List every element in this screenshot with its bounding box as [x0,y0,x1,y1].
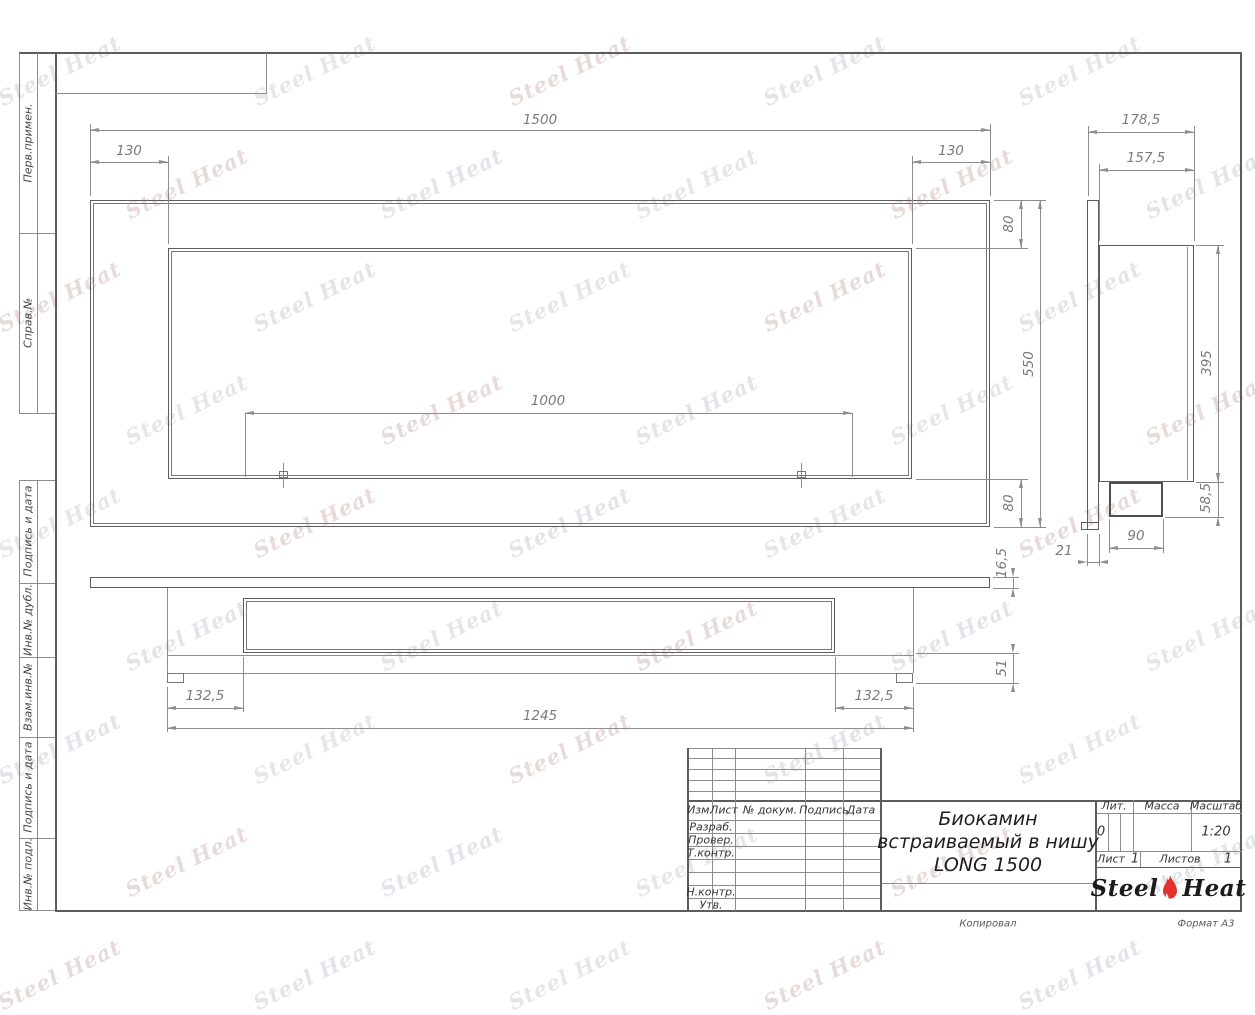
flame-icon [1160,875,1180,903]
sidebar-block-border [37,583,38,657]
stamp-line [687,791,880,792]
sidebar-label-podpis-data-2: Подпись и дата [22,741,35,832]
stamp-scale-value: 1:20 [1201,825,1230,840]
corner-box-right [266,53,267,94]
ext-line [1196,245,1224,246]
ext-line [912,156,913,244]
dim-front-burner-span [245,413,852,414]
ext-line [913,687,914,732]
stamp-col-line [1120,813,1121,851]
dim-side-niche-height [1218,245,1219,482]
dim-side-depth-inner [1099,170,1194,171]
side-view-flange-foot [1081,522,1099,530]
sidebar-block-border [37,657,38,737]
frame-top-border [19,52,1242,54]
ext-line [1163,519,1164,553]
drawing-title: Биокамин встраиваемый в нишу LONG 1500 [881,802,1095,882]
ext-line [916,479,1028,480]
stamp-col-line [843,748,844,911]
ext-line [1088,126,1089,196]
burner-clip-right [797,471,806,478]
ext-line [916,683,1019,684]
dim-front-width-total [90,130,990,131]
dim-label-bottom-offset-right: 132,5 [855,688,894,704]
stamp-sheets-label: Листов [1159,853,1200,866]
stamp-sheet-value: 1 [1131,852,1139,867]
sidebar-label-sprav-no: Справ.№ [22,298,35,348]
stamp-row-tcontrol: Т.контр. [687,847,735,860]
ext-line [168,156,169,244]
stamp-line [687,780,880,781]
sidebar-block-border [19,233,20,413]
stamp-header-doc: № докум. [743,804,797,817]
stamp-header-list: Лист [710,804,738,817]
dim-label-bottom-offset-left: 132,5 [186,688,225,704]
dim-side-flange-depth [1087,562,1099,563]
frame-bottom-border [55,910,1242,912]
sidebar-block-border [37,737,38,838]
drawing-title-line1: Биокамин [938,808,1037,831]
sidebar-block-border [19,737,20,838]
stamp-line [687,872,880,873]
bottom-view-foot-left [167,673,184,683]
dim-side-box-height [1218,482,1219,517]
stamp-row-ncontrol: Н.контр. [686,886,735,899]
dim-label-front-edge-bottom: 80 [1001,494,1017,511]
sidebar-label-inv-podl: Инв.№ подл. [22,838,35,910]
dim-label-front-edge-top: 80 [1001,215,1017,232]
stamp-sheet-label: Лист [1097,853,1125,866]
dim-label-front-offset-right: 130 [938,143,964,159]
sidebar-label-podpis-data-1: Подпись и дата [22,485,35,576]
dim-front-offset-right [912,162,990,163]
drawing-sheet: { "watermark": { "text": "Steel Heat" },… [0,0,1255,970]
burner-clip-left [279,471,288,478]
stamp-line [687,758,880,759]
dim-front-height-total [1040,200,1041,527]
dim-label-bottom-height: 51 [994,659,1010,676]
dim-label-side-depth-total: 178,5 [1122,112,1161,128]
sidebar-label-vzam-inv: Взам.инв.№ [22,663,35,731]
stamp-line [880,883,1095,884]
stamp-row-checked: Провер. [688,834,734,847]
dim-label-bottom-body-width: 1245 [523,708,557,724]
frame-right-border [1240,52,1242,912]
company-logo: Steel Heat [1096,867,1241,910]
drawing-layer: Перв.примен. Справ.№ Подпись и дата Инв.… [0,0,1255,970]
bottom-view-slot-inner-line [246,601,832,650]
stamp-header-sign: Подпись [799,804,848,817]
drawing-title-line2: встраиваемый в нишу [877,831,1099,854]
dim-bottom-plate-thickness [1013,577,1014,588]
bottom-view-back-line [167,655,913,656]
sidebar-block-border [37,480,38,583]
ext-line [994,527,1046,528]
sidebar-block-border [37,233,38,413]
ext-line [990,124,991,196]
dim-bottom-height [1013,653,1014,683]
sidebar-label-inv-dubl: Инв.№ дубл. [22,584,35,656]
corner-box-bottom [55,93,267,94]
stamp-lit-value: 0 [1097,825,1105,840]
stamp-mass-label: Масса [1144,800,1179,813]
ext-line [1099,164,1100,241]
side-view-body-inner-line [1187,247,1188,480]
sidebar-block-border [37,53,38,233]
drawing-title-line3: LONG 1500 [934,854,1042,877]
sidebar-block-border [19,480,20,583]
footer-copied-note: Копировал [959,919,1016,930]
dim-label-side-box-width: 90 [1127,528,1144,544]
bottom-view-bottom-line [167,673,913,674]
dim-side-depth-total [1088,132,1194,133]
dim-label-front-offset-left: 130 [116,143,142,159]
stamp-header-izm: Изм. [687,804,713,817]
ext-line [1194,126,1195,241]
sidebar-block-border [19,838,20,910]
stamp-col-line [1140,851,1141,867]
dim-side-box-width [1109,548,1163,549]
stamp-col-line [805,748,806,911]
ext-line [993,588,1019,589]
stamp-row-developed: Разраб. [689,821,732,834]
sidebar-block-border [19,53,20,233]
sidebar-block-border [19,413,55,414]
dim-label-front-height-total: 550 [1021,351,1037,377]
frame-left-border [55,52,57,912]
bottom-view-body-left-edge [167,588,168,673]
dim-label-side-box-height: 58,5 [1198,483,1214,513]
stamp-header-date: Дата [847,804,875,817]
front-view-opening-inner-line [171,251,909,476]
side-view-burner-box [1109,482,1163,517]
footer-format-note: Формат А3 [1178,919,1235,930]
dim-front-offset-left [90,162,168,163]
dim-label-side-flange-depth: 21 [1055,543,1072,559]
stamp-scale-label: Масштаб [1190,800,1242,813]
stamp-col-line [1133,800,1134,851]
dim-label-front-width-total: 1500 [523,112,557,128]
dim-label-side-niche-height: 395 [1199,350,1215,376]
dim-label-side-depth-inner: 157,5 [1127,150,1166,166]
dim-front-edge-top [1021,200,1022,248]
stamp-line [1095,813,1242,814]
ext-line [243,657,244,712]
bottom-view-top-plate [90,577,990,588]
sidebar-block-border [19,657,20,737]
ext-line [245,413,246,477]
side-view-body [1099,245,1194,482]
dim-bottom-offset-left [167,708,243,709]
bottom-view-foot-right [896,673,913,683]
dim-bottom-body-width [167,728,913,729]
logo-word-heat: Heat [1182,875,1246,902]
sidebar-block-border [19,583,20,657]
sidebar-label-perv-primen: Перв.примен. [22,103,35,182]
stamp-sheets-value: 1 [1224,852,1232,867]
logo-word-steel: Steel [1091,875,1159,902]
stamp-line [687,748,880,749]
ext-line [852,413,853,477]
ext-line [916,653,1019,654]
ext-line [835,657,836,712]
dim-label-bottom-plate-thickness: 16,5 [994,548,1010,578]
stamp-line [687,769,880,770]
dim-front-edge-bottom [1021,479,1022,527]
sidebar-block-border [37,838,38,910]
side-view-flange [1087,200,1099,530]
dim-bottom-offset-right [835,708,913,709]
stamp-row-approved: Утв. [699,899,722,912]
stamp-col-line [1108,813,1109,851]
stamp-lit-label: Лит. [1101,800,1126,813]
bottom-view-body-right-edge [913,588,914,673]
ext-line [916,248,1028,249]
dim-label-front-burner-span: 1000 [531,393,565,409]
